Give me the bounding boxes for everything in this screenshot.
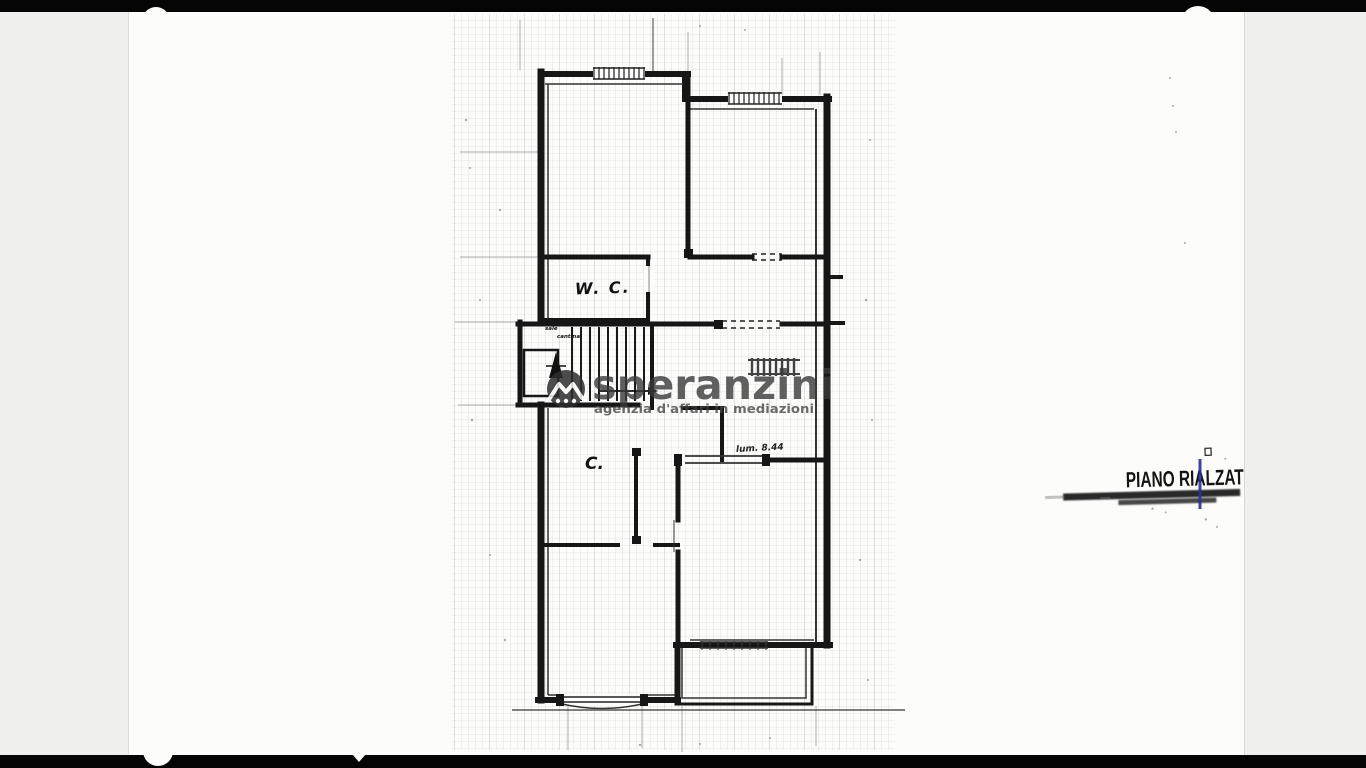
house-roof-icon: [547, 370, 585, 408]
floor-plan-drawing: W. C. C. lum. 8.44 sale cantina speranzi…: [0, 0, 1366, 768]
window-top-left: [593, 66, 645, 81]
scan-edge-top: [0, 0, 1366, 12]
stamp-superscript-mark: [1205, 448, 1211, 455]
stamp-text: PIANO RIALZAT: [1125, 464, 1244, 492]
stair-note-up: sale: [545, 326, 558, 332]
room-c-label: C.: [585, 454, 604, 474]
scanned-floor-plan-page: W. C. C. lum. 8.44 sale cantina speranzi…: [0, 0, 1366, 768]
watermark-tagline-text: agenzia d'affari in mediazioni: [594, 401, 814, 416]
scan-notch: [142, 7, 170, 35]
scan-notch: [352, 754, 366, 762]
wc-room-label: W. C.: [575, 278, 631, 299]
window-top-right: [728, 91, 782, 106]
scan-notch: [143, 736, 173, 766]
stair-note-cantina: cantina: [557, 334, 580, 340]
stamp-underline: [1063, 492, 1240, 504]
scan-notch: [1181, 6, 1215, 40]
floor-stamp: PIANO RIALZAT: [1044, 447, 1245, 532]
wc-door: [644, 266, 654, 292]
scan-edge-bottom: [0, 755, 1366, 768]
